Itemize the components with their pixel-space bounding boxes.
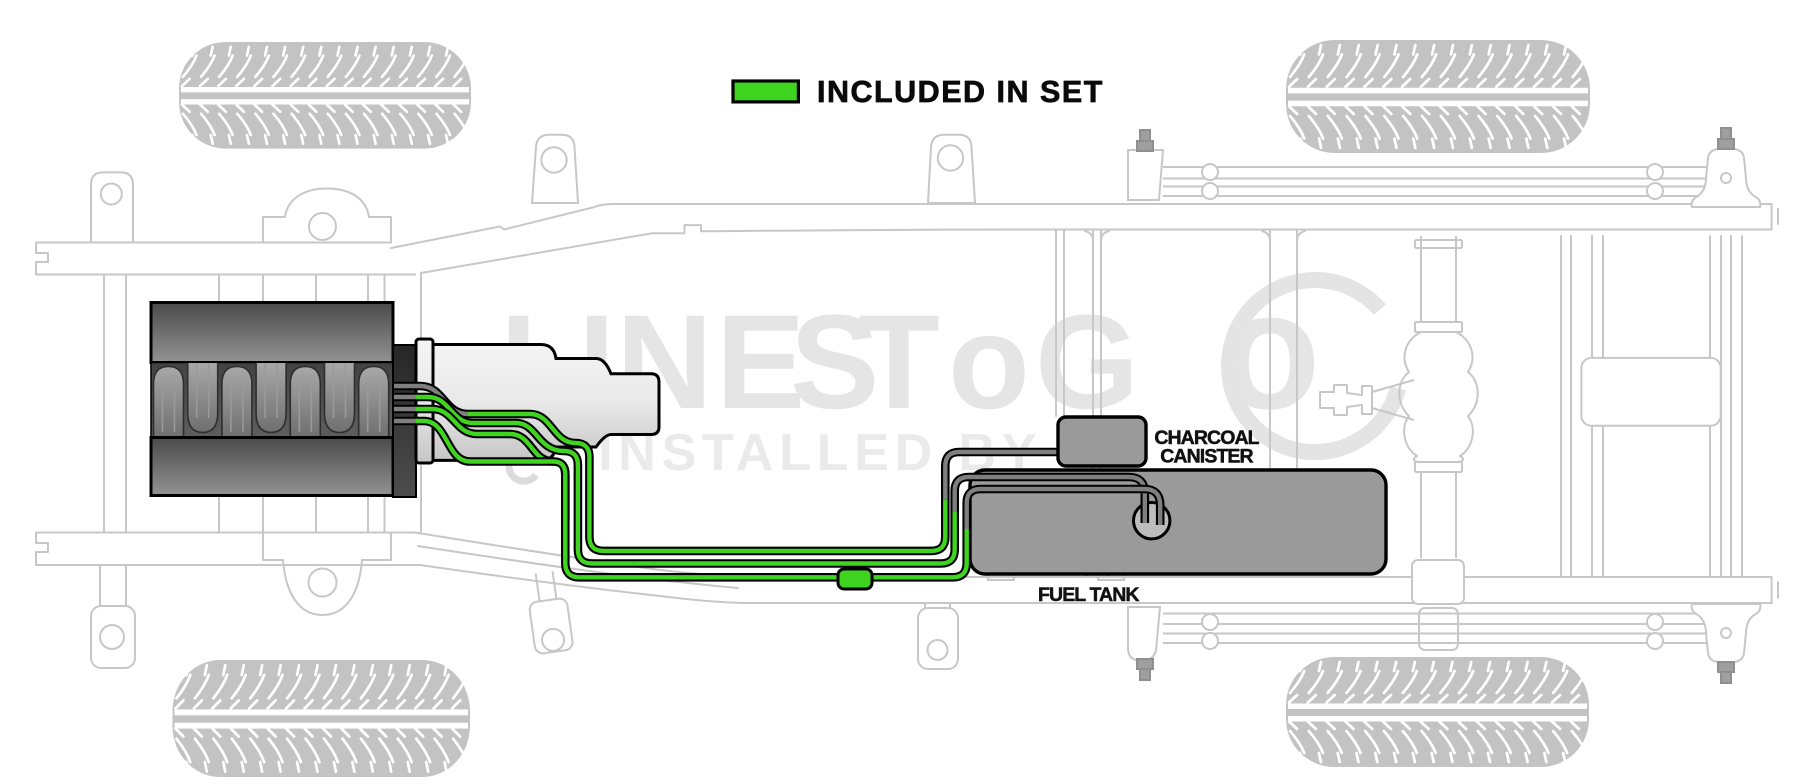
svg-text:CANISTER: CANISTER: [1160, 446, 1253, 468]
svg-text:FUEL TANK: FUEL TANK: [1038, 584, 1139, 606]
svg-text:INCLUDED IN SET: INCLUDED IN SET: [817, 75, 1104, 109]
